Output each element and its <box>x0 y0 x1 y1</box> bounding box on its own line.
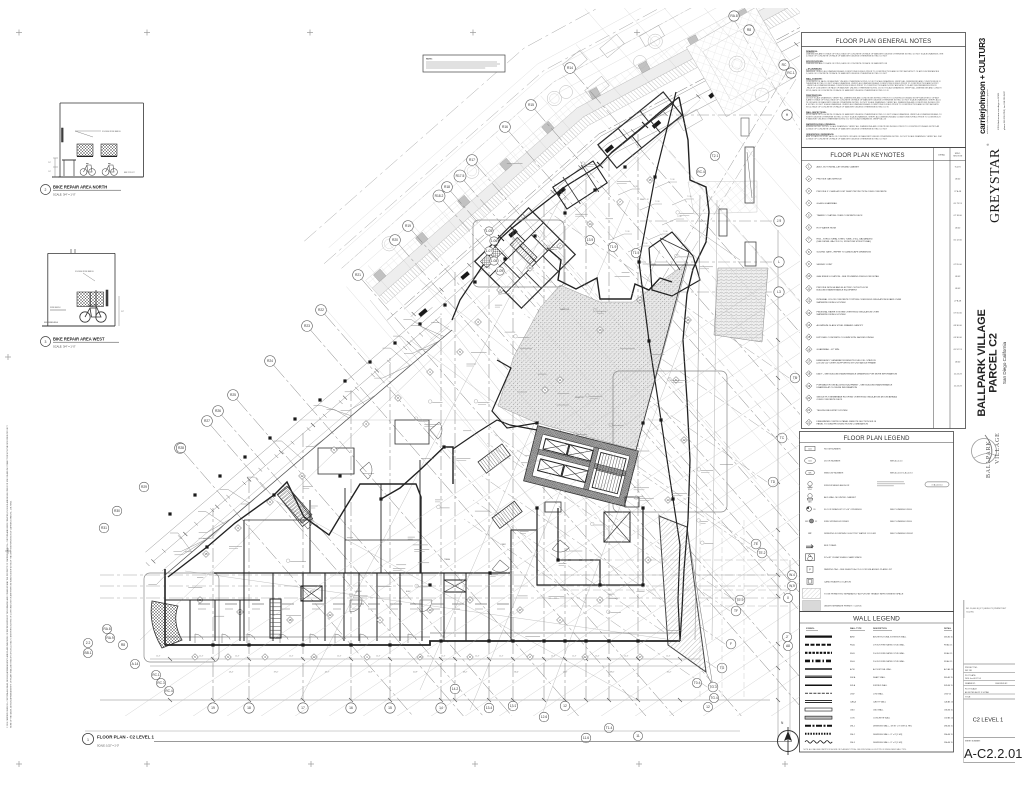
svg-text:FB-H: FB-H <box>850 661 855 663</box>
svg-text:37'-0": 37'-0" <box>274 672 279 674</box>
svg-text:NO. 30,000 SQ FT (LEVEL P1) PE: NO. 30,000 SQ FT (LEVEL P1) PERMIT SET <box>966 608 1007 610</box>
svg-text:14.2: 14.2 <box>452 687 459 691</box>
svg-text:R27: R27 <box>204 419 210 423</box>
svg-text:(24"x36"x12" DEEP) SUPPORTED: (24"x36"x12" DEEP) SUPPORTED BY UNIT ANG… <box>817 362 877 365</box>
svg-text:1301 third avenue san diego: 1301 third avenue san diego ca 92101 <box>997 92 1000 130</box>
svg-text:1'-6": 1'-6" <box>48 171 51 173</box>
svg-text:BIKE REPAIR AREA NORTH: BIKE REPAIR AREA NORTH <box>53 185 107 190</box>
svg-text:A8: A8 <box>786 644 790 648</box>
svg-text:RC.3: RC.3 <box>157 681 165 685</box>
svg-text:WORK BENCH: WORK BENCH <box>50 307 60 309</box>
svg-text:10: 10 <box>807 274 810 278</box>
svg-text:SCALE: 1/32" = 1'-0": SCALE: 1/32" = 1'-0" <box>97 745 119 748</box>
svg-text:STOR: STOR <box>310 591 316 593</box>
svg-text:13.1: 13.1 <box>510 704 517 708</box>
svg-text:PARKING TAG - SEE SHEETS A-C2.: PARKING TAG - SEE SHEETS A-C2.0L FOR ENL… <box>824 568 893 571</box>
svg-text:D, FACE OF CONCRETE OR FACE OF: D, FACE OF CONCRETE OR FACE OF MASONRY U… <box>806 137 888 140</box>
svg-text:STUD, FACE OF CONCRETE OR FACE: STUD, FACE OF CONCRETE OR FACE OF MASONR… <box>806 89 889 92</box>
svg-text:12'-4": 12'-4" <box>441 656 446 658</box>
svg-text:PANEL TO IDEA PROVIDED ROOM CO: PANEL TO IDEA PROVIDED ROOM COMBINATION <box>817 423 869 426</box>
svg-text:C 2016 CARRIERJOHNSON + CULTUR: C 2016 CARRIERJOHNSON + CULTURA ALL IDEA… <box>6 425 9 728</box>
svg-text:DETAIL: DETAIL <box>938 154 946 157</box>
svg-text:DEMISING WALL - 8" x 8' [1 HR]: DEMISING WALL - 8" x 8' [1 HR] <box>873 733 903 736</box>
svg-text:T.O.W.: T.O.W. <box>633 186 638 188</box>
svg-text:SECTION: SECTION <box>953 156 962 158</box>
svg-text:12'-4": 12'-4" <box>666 656 671 658</box>
svg-text:2'-6": 2'-6" <box>48 162 51 164</box>
svg-text:DRAWING AT CLOSURE INFORMATION: DRAWING AT CLOSURE INFORMATION <box>817 386 858 389</box>
svg-text:ELEC: ELEC <box>406 591 411 593</box>
svg-text:FB A6 15: FB A6 15 <box>944 652 953 655</box>
svg-text:FIRE/WATER CONTROL PANEL REMOT: FIRE/WATER CONTROL PANEL REMOTE SECTION … <box>817 420 877 423</box>
svg-text:SHEET NUMBER:: SHEET NUMBER: <box>965 741 981 743</box>
svg-text:FURRED WALL: FURRED WALL <box>873 684 888 687</box>
svg-text:13: 13 <box>667 498 670 502</box>
svg-text:12: 12 <box>706 705 710 709</box>
svg-text:L: L <box>778 260 780 264</box>
svg-text:CHECKED BY:: CHECKED BY: <box>995 683 1008 685</box>
svg-text:12'-4": 12'-4" <box>499 656 504 658</box>
svg-text:2016 Jun-08 17:54: 2016 Jun-08 17:54 <box>965 678 981 680</box>
svg-text:41'-7": 41'-7" <box>325 672 330 674</box>
svg-text:BALLPARK VILLAGE: BALLPARK VILLAGE <box>976 309 988 416</box>
svg-text:RC.4: RC.4 <box>697 170 705 174</box>
svg-text:18: 18 <box>807 372 810 376</box>
svg-text:R16: R16 <box>502 125 508 129</box>
svg-text:INTEGRAL COLOR CONCRETE TOPPIN: INTEGRAL COLOR CONCRETE TOPPING OVER RIG… <box>817 298 902 301</box>
svg-text:R14: R14 <box>567 66 573 70</box>
svg-text:ADD'L BOT INSTALL AT GR AND CA: ADD'L BOT INSTALL AT GR AND CABINET <box>817 165 860 168</box>
svg-text:SW-A: SW-A <box>850 676 856 679</box>
svg-text:5/B A6 15: 5/B A6 15 <box>944 636 954 639</box>
svg-text:D, FACE OF CONCRETE OR FACE OF: D, FACE OF CONCRETE OR FACE OF MASONRY U… <box>806 128 888 131</box>
svg-text:22: 22 <box>329 613 332 617</box>
svg-text:SYMBOL: SYMBOL <box>806 628 815 630</box>
svg-text:RA.8: RA.8 <box>103 627 110 631</box>
svg-text:®: ® <box>985 143 990 146</box>
svg-text:14'-4": 14'-4" <box>229 672 234 674</box>
svg-text:WATERPROOFING SYSTEM: WATERPROOFING SYSTEM <box>817 301 846 304</box>
svg-text:RC.4: RC.4 <box>165 689 173 693</box>
svg-text:11: 11 <box>636 734 640 738</box>
svg-text:12'-4": 12'-4" <box>572 656 577 658</box>
svg-text:12'-4": 12'-4" <box>595 656 600 658</box>
svg-text:P: P <box>809 567 811 571</box>
svg-text:NONE OF THE IDEAS, DESIGN, ARR: NONE OF THE IDEAS, DESIGN, ARRANGEMENTS … <box>9 500 12 728</box>
svg-text:DM A6 15: DM A6 15 <box>944 725 954 728</box>
svg-text:CMU: CMU <box>850 710 855 712</box>
svg-text:9.42 S: 9.42 S <box>955 166 962 168</box>
svg-text:T.O.W.: T.O.W. <box>625 231 630 233</box>
svg-text:ACOUSTICAL WALL: ACOUSTICAL WALL <box>873 668 893 671</box>
svg-text:19: 19 <box>599 328 602 332</box>
svg-text:RC.1: RC.1 <box>787 71 795 75</box>
svg-text:OVER CONCRETE DECK: OVER CONCRETE DECK <box>817 399 843 401</box>
svg-text:12'-4": 12'-4" <box>289 656 294 658</box>
svg-text:SINGLE PLY MEMBRANE ROOFING OV: SINGLE PLY MEMBRANE ROOFING OVER RIGID I… <box>817 396 898 399</box>
svg-text:PLOT DATE:: PLOT DATE: <box>965 674 976 677</box>
svg-text:SCALE: 3/4" = 1'-0": SCALE: 3/4" = 1'-0" <box>53 345 76 349</box>
svg-text:14'-9": 14'-9" <box>368 672 373 674</box>
svg-text:phone 619 239 2353 | f: phone 619 239 2353 | fax 619 239 2437 <box>1004 90 1006 130</box>
svg-text:12'-4": 12'-4" <box>376 656 381 658</box>
svg-text:SEE PLUMBING DWGS: SEE PLUMBING DWGS <box>890 521 912 523</box>
svg-text:DM A6 15: DM A6 15 <box>944 741 954 744</box>
svg-text:27 A 18: 27 A 18 <box>954 190 962 193</box>
svg-text:FOLDING WORK BENCH: FOLDING WORK BENCH <box>102 131 121 133</box>
svg-text:TO BE PERMITTED SEPARATELY AS: TO BE PERMITTED SEPARATELY AS FUTURE TEN… <box>824 592 904 595</box>
svg-text:ROOM NUMBER: ROOM NUMBER <box>824 449 841 451</box>
svg-text:BB.1: BB.1 <box>84 651 91 655</box>
svg-text:#142705: #142705 <box>966 611 975 613</box>
svg-text:GUARDRAIL - 42" MIN.: GUARDRAIL - 42" MIN. <box>817 348 840 351</box>
svg-text:DRINKING FOUNTAIN / ELECTRIC W: DRINKING FOUNTAIN / ELECTRIC WATER COOLE… <box>824 532 876 535</box>
svg-text:A-C2.2.01: A-C2.2.01 <box>964 746 1023 761</box>
svg-text:SLIDING GATE - REFER TO LANDSC: SLIDING GATE - REFER TO LANDSCAPE DRAWIN… <box>817 251 872 254</box>
svg-text:FB A6 15: FB A6 15 <box>944 644 953 647</box>
svg-text:13: 13 <box>639 298 642 302</box>
svg-text:EMERGENCY GENERATOR REMOTE FUE: EMERGENCY GENERATOR REMOTE FUEL FILL STA… <box>817 359 876 362</box>
svg-text:12'-4": 12'-4" <box>427 656 432 658</box>
svg-text:FLOOR PLAN LEGEND: FLOOR PLAN LEGEND <box>843 436 910 442</box>
svg-text:GLASS GUARDRAIL: GLASS GUARDRAIL <box>817 202 838 205</box>
svg-text:R8: R8 <box>121 643 125 647</box>
svg-text:1.05: 1.05 <box>486 229 493 233</box>
svg-text:16: 16 <box>807 347 810 351</box>
svg-text:PROVIDE NON-SE AND ELECTRIC OU: PROVIDE NON-SE AND ELECTRIC OUTLETS FOR <box>817 286 869 289</box>
svg-text:WATERPROOFING SYSTEM: WATERPROOFING SYSTEM <box>817 313 846 316</box>
svg-text:13.9: 13.9 <box>587 238 594 242</box>
svg-text:1.09: 1.09 <box>497 269 504 273</box>
svg-text:PROVIDE GAS SERVICE: PROVIDE GAS SERVICE <box>817 178 843 181</box>
svg-text:RAMP DN: RAMP DN <box>560 308 570 311</box>
svg-text:07 55 00: 07 55 00 <box>954 313 963 315</box>
svg-text:30"x48" CLEAR WHEELCHAIR SPACE: 30"x48" CLEAR WHEELCHAIR SPACE <box>824 556 862 559</box>
svg-text:DESCRIPTION: DESCRIPTION <box>873 628 887 630</box>
svg-text:SEE PLUMBING DWGS2: SEE PLUMBING DWGS2 <box>890 533 914 535</box>
svg-text:R31: R31 <box>101 526 107 530</box>
svg-text:TF: TF <box>734 609 738 613</box>
svg-text:PROJECT NO:: PROJECT NO: <box>965 667 978 669</box>
svg-text:(SEE DETAIL 4/A-C2.8.2.0, 32/D: (SEE DETAIL 4/A-C2.8.2.0, 32/DET/GR STRU… <box>817 240 872 243</box>
svg-text:10: 10 <box>429 608 432 612</box>
svg-text:1.08: 1.08 <box>491 259 498 263</box>
svg-text:12.6: 12.6 <box>541 715 548 719</box>
svg-text:19: 19 <box>211 706 215 710</box>
svg-text:PROVIDE 5' C AND A/V DIST DEEP: PROVIDE 5' C AND A/V DIST DEEP PROTECTIO… <box>817 190 888 193</box>
svg-text:05 12 00: 05 12 00 <box>954 240 963 242</box>
svg-text:R15: R15 <box>528 103 534 107</box>
svg-text:18: 18 <box>247 706 251 710</box>
svg-text:WALL TYPE: WALL TYPE <box>850 627 862 630</box>
svg-text:1: 1 <box>87 738 89 742</box>
svg-text:07 18 00: 07 18 00 <box>954 215 963 217</box>
svg-text:R19: R19 <box>405 224 411 228</box>
svg-text:19: 19 <box>807 384 810 388</box>
svg-text:R21: R21 <box>355 273 361 277</box>
svg-text:18'-2": 18'-2" <box>463 672 468 674</box>
svg-text:TG.4: TG.4 <box>710 696 717 700</box>
svg-text:architecture + planning + inte: architecture + planning + interior archi… <box>986 89 989 134</box>
svg-text:TITLE:: TITLE: <box>965 697 971 699</box>
svg-text:36'-4": 36'-4" <box>514 672 519 674</box>
svg-text:1.07: 1.07 <box>486 249 493 253</box>
svg-text:FIRE SPRINKLER RISER: FIRE SPRINKLER RISER <box>824 521 849 523</box>
svg-text:DRAWN BY:: DRAWN BY: <box>965 682 976 685</box>
svg-text:12'-4": 12'-4" <box>337 656 342 658</box>
svg-text:RG-1: RG-1 <box>808 489 812 491</box>
svg-text:3/B A6 15: 3/B A6 15 <box>944 676 954 679</box>
svg-text:12: 12 <box>313 655 316 659</box>
svg-text:RA.9: RA.9 <box>106 636 113 640</box>
svg-text:MECH: MECH <box>356 591 362 593</box>
svg-text:22: 22 <box>807 420 810 424</box>
svg-text:PARCEL C2: PARCEL C2 <box>988 333 1000 393</box>
svg-text:T.O.W.: T.O.W. <box>670 179 675 181</box>
svg-text:12'-4": 12'-4" <box>156 656 161 658</box>
svg-text:R24: R24 <box>267 359 273 363</box>
svg-text:40'-9": 40'-9" <box>413 672 418 674</box>
svg-text:3: 3 <box>45 340 47 344</box>
svg-text:2 HOUR FIRE RATED STUD WALL: 2 HOUR FIRE RATED STUD WALL <box>873 652 906 655</box>
svg-text:11 24 23: 11 24 23 <box>954 374 963 376</box>
svg-text:R29: R29 <box>141 485 147 489</box>
svg-text:R20: R20 <box>392 238 398 242</box>
svg-text:15: 15 <box>649 178 652 182</box>
svg-text:T.O.W.: T.O.W. <box>687 196 692 198</box>
svg-text:ALUMINUM GLASS STEEL FRAMED CA: ALUMINUM GLASS STEEL FRAMED CANOPY <box>817 324 864 327</box>
svg-text:R28: R28 <box>178 446 184 450</box>
svg-text:R18.2: R18.2 <box>435 194 444 198</box>
svg-text:18: 18 <box>289 618 292 622</box>
svg-text:CM A6 15: CM A6 15 <box>944 709 954 712</box>
svg-text:11 24 23: 11 24 23 <box>954 386 963 388</box>
svg-text:W.4: W.4 <box>789 573 795 577</box>
svg-text:carrierjohnson + CULTUR3: carrierjohnson + CULTUR3 <box>978 37 987 134</box>
svg-text:14: 14 <box>439 706 443 710</box>
svg-text:12'-4": 12'-4" <box>624 656 629 658</box>
svg-text:12: 12 <box>807 299 810 303</box>
svg-text:F MASONRY UNLESS OTHERWISE NOT: F MASONRY UNLESS OTHERWISE NOTED. DO NOT… <box>806 118 887 121</box>
svg-text:TG.3: TG.3 <box>709 685 716 689</box>
svg-text:LOW WALL: LOW WALL <box>873 692 884 695</box>
svg-text:ADD WALL MOUNTED CABINET: ADD WALL MOUNTED CABINET <box>824 496 857 499</box>
svg-text:EXPOSED CONCRETE COLUMN WITH S: EXPOSED CONCRETE COLUMN WITH SACKED FINI… <box>817 336 875 339</box>
svg-text:FB-B: FB-B <box>850 653 855 655</box>
svg-text:01/02: 01/02 <box>955 288 961 290</box>
svg-text:05 52 13: 05 52 13 <box>954 349 963 351</box>
svg-text:R23: R23 <box>304 324 310 328</box>
svg-text:RC: RC <box>782 63 787 67</box>
svg-text:VILLAGE: VILLAGE <box>995 432 1001 464</box>
svg-text:07 95 00: 07 95 00 <box>954 264 963 266</box>
svg-text:TG: TG <box>720 666 725 670</box>
svg-text:W.9: W.9 <box>789 584 795 588</box>
svg-text:LSW 15: LSW 15 <box>944 693 952 695</box>
svg-text:HOT WATER HOSE: HOT WATER HOSE <box>817 226 837 229</box>
svg-text:SEISMIC JOINT: SEISMIC JOINT <box>817 264 834 266</box>
svg-text:R8: R8 <box>747 28 751 32</box>
svg-text:15: 15 <box>419 655 422 659</box>
svg-text:WALL LEGEND: WALL LEGEND <box>853 615 900 622</box>
svg-text:SEE A-C2.8.1% A-C2.8.3: SEE A-C2.8.1% A-C2.8.3 <box>890 472 913 475</box>
svg-text:ACI A6 15: ACI A6 15 <box>944 668 954 671</box>
svg-text:21: 21 <box>807 408 810 412</box>
svg-text:TELEPHONE ENTRY SYSTEM: TELEPHONE ENTRY SYSTEM <box>817 410 848 412</box>
svg-text:CAVITY WALL: CAVITY WALL <box>873 700 887 703</box>
svg-text:CAV-A: CAV-A <box>850 700 857 703</box>
svg-text:SCALE: 3/4" = 1'-0": SCALE: 3/4" = 1'-0" <box>53 193 76 197</box>
svg-text:11: 11 <box>807 286 810 290</box>
svg-text:FLOOR DRAIN W/ 12"x16" OPENING: FLOOR DRAIN W/ 12"x16" OPENINGS <box>824 508 862 511</box>
svg-text:PORTABLE ROOM ACCESS EQUIPMENT: PORTABLE ROOM ACCESS EQUIPMENT - SEE BUI… <box>817 384 893 387</box>
svg-text:12'-4": 12'-4" <box>475 656 480 658</box>
svg-text:FB A6 15: FB A6 15 <box>944 660 953 663</box>
svg-text:05 73 13: 05 73 13 <box>954 203 963 205</box>
svg-text:CON: CON <box>850 718 855 720</box>
svg-text:LOBBY: LOBBY <box>500 544 507 546</box>
svg-text:SEE A-C2.3.0: SEE A-C2.3.0 <box>890 460 903 463</box>
svg-text:3 / A-C2.8.1.0: 3 / A-C2.8.1.0 <box>932 484 943 487</box>
svg-text:CONCRETE WALL: CONCRETE WALL <box>873 717 891 720</box>
svg-text:D, FACE OF CONCRETE OR FACE OF: D, FACE OF CONCRETE OR FACE OF MASONRY U… <box>806 72 888 75</box>
svg-text:C2 LEVEL 1: C2 LEVEL 1 <box>973 718 1004 724</box>
svg-text:R30: R30 <box>114 509 120 513</box>
svg-text:R25: R25 <box>230 393 236 397</box>
svg-text:28'-6": 28'-6" <box>610 672 615 674</box>
svg-text:GREYSTAR: GREYSTAR <box>988 148 1003 223</box>
svg-text:14: 14 <box>589 222 592 226</box>
svg-text:16: 16 <box>687 318 690 322</box>
svg-text:T1.4: T1.4 <box>606 726 613 730</box>
svg-text:22: 22 <box>584 655 587 659</box>
svg-text:303 130: 303 130 <box>965 670 972 672</box>
svg-text:BIKE TOOL KIT: BIKE TOOL KIT <box>124 172 135 174</box>
svg-text:J.9: J.9 <box>777 219 782 223</box>
svg-text:FLOOR PLAN - C2 LEVEL 1: FLOOR PLAN - C2 LEVEL 1 <box>97 735 155 740</box>
svg-text:DAV'T - SEE BUILDING MAINTENAN: DAV'T - SEE BUILDING MAINTENANCE DRAWING… <box>817 373 898 376</box>
svg-text:12'-4": 12'-4" <box>199 656 204 658</box>
svg-text:DEMISING WALL - 8" x 8' [1 HR]: DEMISING WALL - 8" x 8' [1 HR] <box>873 741 903 744</box>
svg-text:F: F <box>730 642 732 646</box>
svg-text:SHAFT WALL: SHAFT WALL <box>873 676 886 679</box>
svg-text:FB-A: FB-A <box>850 644 855 647</box>
svg-text:R17.5: R17.5 <box>456 174 465 178</box>
svg-text:3'-8": 3'-8" <box>121 311 124 313</box>
svg-text:T.O.W.: T.O.W. <box>663 231 668 233</box>
svg-text:SUMP PIT: SUMP PIT <box>575 397 585 399</box>
svg-text:DOOR NUMBER: DOOR NUMBER <box>824 461 841 463</box>
svg-text:15: 15 <box>205 552 208 556</box>
svg-text:SEE PLUMBING DWGS: SEE PLUMBING DWGS <box>890 509 912 511</box>
svg-text:ARCHITECTURAL EXTERIOR WALL: ARCHITECTURAL EXTERIOR WALL <box>873 636 907 639</box>
svg-text:DIMENSIONS ARE TO FACE OF STUD: DIMENSIONS ARE TO FACE OF STUD, FACE OF … <box>806 62 888 65</box>
svg-text:R26: R26 <box>215 409 221 413</box>
svg-text:13.4: 13.4 <box>486 706 493 710</box>
svg-text:T1.9: T1.9 <box>610 245 617 249</box>
svg-text:12: 12 <box>301 474 304 478</box>
svg-text:T.O.W.: T.O.W. <box>643 243 648 245</box>
svg-text:31'-2": 31'-2" <box>667 672 672 674</box>
svg-text:08 30 00: 08 30 00 <box>954 325 963 327</box>
svg-text:2: 2 <box>45 188 47 192</box>
svg-text:CARD READER LOCATION: CARD READER LOCATION <box>824 580 851 583</box>
svg-text:FLOOR PLAN KEYNOTES: FLOOR PLAN KEYNOTES <box>830 153 904 159</box>
svg-text:16: 16 <box>349 706 353 710</box>
svg-text:TD: TD <box>771 480 776 484</box>
svg-text:12: 12 <box>563 704 567 708</box>
svg-text:12'-4": 12'-4" <box>235 656 240 658</box>
svg-text:15: 15 <box>388 706 392 710</box>
svg-text:DEMISING WALL - 3/8 ST x 8' GW: DEMISING WALL - 3/8 ST x 8' GWT [1 HR] <box>873 725 912 728</box>
svg-text:27 A 18: 27 A 18 <box>954 299 962 302</box>
svg-text:TRASH: TRASH <box>444 558 451 561</box>
svg-text:2 HOUR FIRE RATED STUD WALL: 2 HOUR FIRE RATED STUD WALL <box>873 660 906 663</box>
svg-text:San Diego California: San Diego California <box>1002 341 1007 384</box>
svg-text:GAS RISER LOCATION - SEE PLUMB: GAS RISER LOCATION - SEE PLUMBING DWGS F… <box>817 275 880 278</box>
svg-text:20: 20 <box>807 396 810 400</box>
svg-text:01/02: 01/02 <box>955 179 961 181</box>
svg-text:01/02: 01/02 <box>955 276 961 278</box>
svg-text:UNDER SEPARATE PERMIT # 14270: UNDER SEPARATE PERMIT # 142705 <box>824 605 862 608</box>
svg-text:12' - 0": 12' - 0" <box>700 221 706 223</box>
svg-text:AEW: AEW <box>850 636 855 639</box>
svg-text:STUD, FACE OF CONCRETE OR FACE: STUD, FACE OF CONCRETE OR FACE OF MASONR… <box>806 105 889 108</box>
svg-text:T0.4: T0.4 <box>694 681 701 685</box>
svg-text:T.O.W.: T.O.W. <box>677 216 682 218</box>
svg-text:FW-A: FW-A <box>850 684 856 687</box>
svg-text:R22: R22 <box>318 308 324 312</box>
svg-text:BUILDING MAINTENANCE EQUIPMENT: BUILDING MAINTENANCE EQUIPMENT <box>817 289 858 292</box>
svg-text:17: 17 <box>807 360 810 364</box>
svg-text:FW A6 15: FW A6 15 <box>944 684 954 687</box>
svg-text:TC: TC <box>780 436 785 440</box>
svg-text:D, FACE OF CONCRETE OR FACE OF: D, FACE OF CONCRETE OR FACE OF MASONRY U… <box>806 55 888 58</box>
svg-text:FIXED/STAGED ANCHOR: FIXED/STAGED ANCHOR <box>824 484 850 487</box>
svg-text:2.2: 2.2 <box>86 641 91 645</box>
svg-text:12'-8": 12'-8" <box>563 672 568 674</box>
svg-text:R17: R17 <box>469 158 475 162</box>
svg-text:FOLDING WORK BENCH: FOLDING WORK BENCH <box>75 271 94 273</box>
svg-text:13: 13 <box>807 311 810 315</box>
svg-text:1 HOUR FIRE RATED STUD WALL: 1 HOUR FIRE RATED STUD WALL <box>873 644 906 647</box>
svg-text:PLOT SCALE:: PLOT SCALE: <box>965 687 978 690</box>
svg-text:TE.2: TE.2 <box>759 551 766 555</box>
svg-text:11.6: 11.6 <box>583 736 589 740</box>
svg-text:14: 14 <box>807 323 810 327</box>
svg-text:R18: R18 <box>444 185 450 189</box>
svg-text:1.06: 1.06 <box>491 239 498 243</box>
svg-text:CMU WALL: CMU WALL <box>873 709 884 712</box>
svg-text:CAI A6 15: CAI A6 15 <box>944 700 954 703</box>
svg-text:CW A6 15: CW A6 15 <box>944 717 954 720</box>
svg-text:ACW: ACW <box>850 668 855 671</box>
svg-text:RAMP 1:12: RAMP 1:12 <box>640 198 649 201</box>
svg-text:17: 17 <box>301 706 305 710</box>
svg-text:LSW: LSW <box>850 693 854 695</box>
svg-text:01/02: 01/02 <box>955 361 961 363</box>
svg-text:NOTE: ALL WALL AND PARTITION S: NOTE: ALL WALL AND PARTITION SHOWN ON PL… <box>804 748 907 751</box>
svg-text:RC.1: RC.1 <box>152 673 160 677</box>
svg-text:17: 17 <box>639 655 642 659</box>
svg-text:TRAFFIC COATING OVER CONCRETE: TRAFFIC COATING OVER CONCRETE DECK <box>817 214 864 217</box>
svg-text:RA.8: RA.8 <box>730 14 737 18</box>
svg-text:T.O.W.: T.O.W. <box>655 201 660 203</box>
svg-text:03 30 00: 03 30 00 <box>954 337 963 339</box>
svg-text:01/02: 01/02 <box>955 227 961 229</box>
svg-text:11: 11 <box>559 378 562 382</box>
svg-text:A.14: A.14 <box>132 662 139 666</box>
